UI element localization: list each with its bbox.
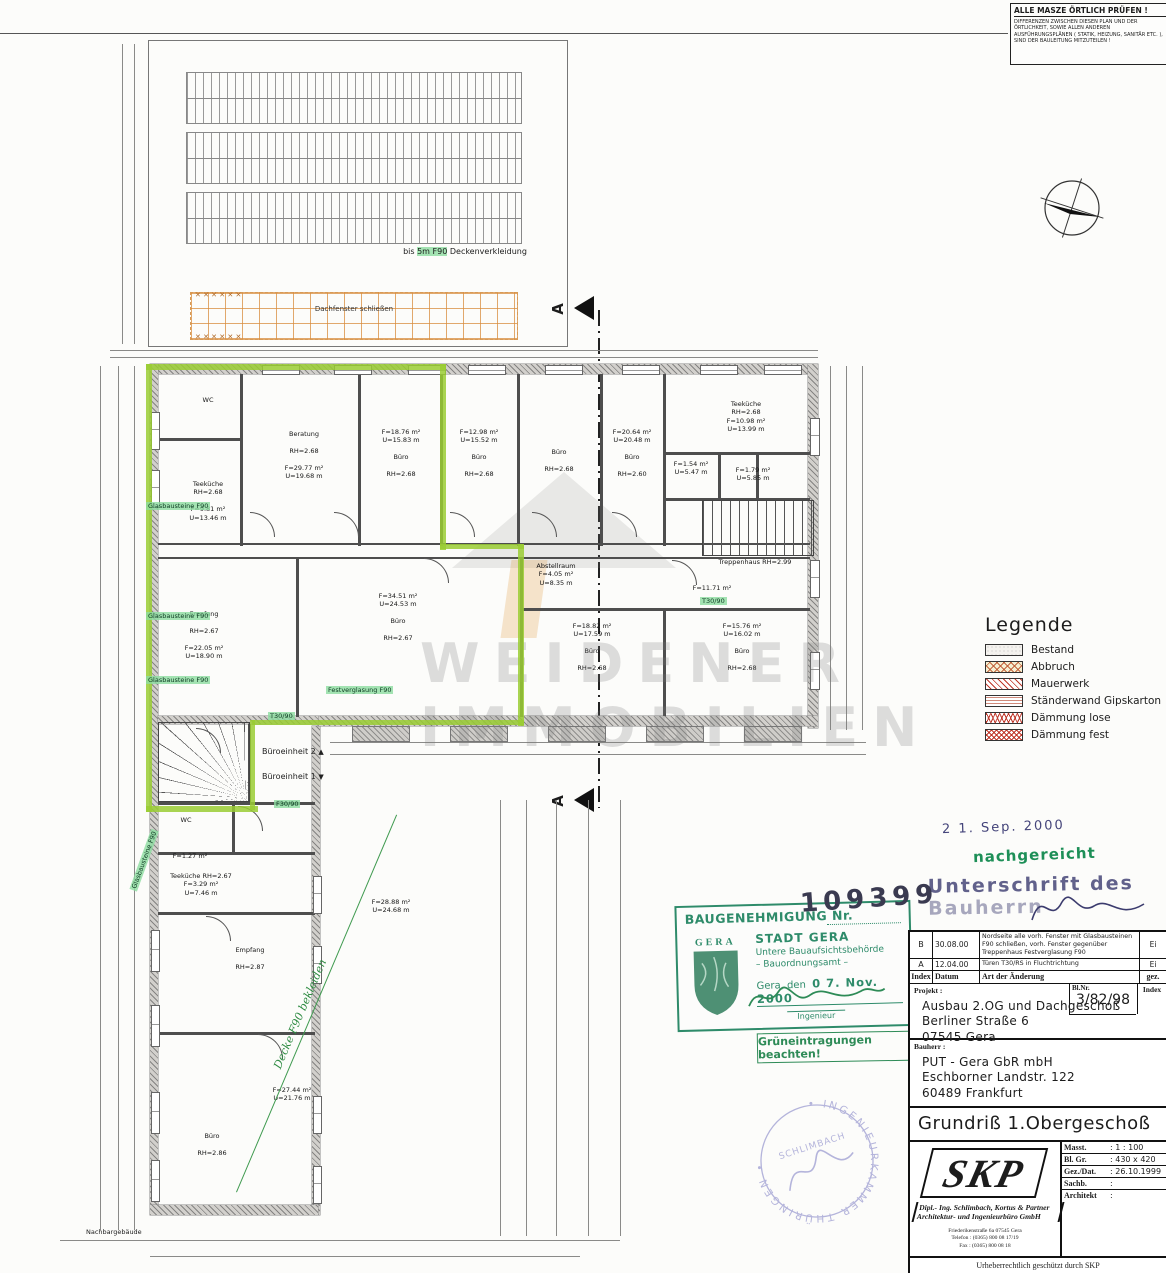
skp-logo-text: SKP <box>938 1149 1029 1196</box>
field-label: Masst. <box>1064 1143 1110 1152</box>
unit-arrow-icon: ▼ <box>318 773 323 781</box>
interior-wall <box>663 374 666 546</box>
room-label: Beratung RH=2.68 F=29.77 m²U=19.68 m <box>258 430 350 481</box>
field-label: Bl. Gr. <box>1064 1155 1110 1164</box>
bestand-swatch <box>985 644 1023 656</box>
room-label: F=1.79 m²U=5.85 m <box>728 466 778 483</box>
green-markup-line <box>146 364 446 370</box>
building-permit-stamp: BAUGENEHMIGUNG Nr. GERA STADT GERA Unter… <box>674 900 913 1032</box>
room-label: F=12.98 m²U=15.52 m Büro RH=2.68 <box>446 428 512 479</box>
field-value: : <box>1110 1179 1113 1188</box>
window-symbol <box>545 365 583 375</box>
room-label: Empfang RH=2.87 <box>212 946 288 971</box>
green-note: Glasbausteine F90 <box>146 502 210 510</box>
room-label: F=27.44 m²U=21.76 m <box>252 1086 332 1103</box>
legend-item-label: Abbruch <box>1031 661 1075 673</box>
rev-datum: 30.08.00 <box>933 932 980 958</box>
legend-item-label: Dämmung fest <box>1031 729 1109 741</box>
dimension-line <box>862 366 863 730</box>
door-arc <box>450 512 475 537</box>
green-entries-note: Grüneintragungen beachten! <box>758 1033 914 1062</box>
dimension-line <box>150 1256 580 1257</box>
interior-wall <box>600 374 603 546</box>
svg-text:GERA: GERA <box>695 937 736 949</box>
field-label: Architekt <box>1064 1191 1110 1255</box>
rev-text: Türen T30/RS in Fluchtrichtung <box>980 959 1140 970</box>
interior-wall <box>158 438 242 441</box>
revision-row: A12.04.00Türen T30/RS in FluchtrichtungE… <box>910 959 1166 971</box>
legend-item-label: Bestand <box>1031 644 1074 656</box>
room-label: F=1.27 m² <box>162 852 218 860</box>
revision-row: B30.08.00Nordseite alle vorh. Fenster mi… <box>910 932 1166 959</box>
legend-item-label: Dämmung lose <box>1031 712 1111 724</box>
index-label: Index <box>1138 984 1166 994</box>
dimension-line <box>500 800 501 1236</box>
svg-text:SCHLIMBACH: SCHLIMBACH <box>778 1131 847 1162</box>
client-lines: PUT - Gera GbR mbHEschborner Landstr. 12… <box>922 1055 1075 1102</box>
dimension-line <box>134 44 135 344</box>
dimension-line <box>110 350 818 351</box>
field-value: : 430 x 420 <box>1110 1155 1156 1164</box>
client-line: PUT - Gera GbR mbH <box>922 1055 1075 1071</box>
door-arc <box>612 512 637 537</box>
green-note: Festverglasung F90 <box>326 686 393 694</box>
window-symbol <box>313 876 322 914</box>
stamp-city: STADT GERA <box>755 930 849 946</box>
room-label: F=28.88 m²U=24.68 m <box>352 898 430 915</box>
interior-wall <box>296 559 299 717</box>
wall <box>150 1205 318 1215</box>
drawing-title-bar: Grundriß 1.Obergeschoß <box>910 1108 1166 1142</box>
dimension-line <box>134 366 135 1230</box>
client-line: Eschborner Landstr. 122 <box>922 1070 1075 1086</box>
dimension-line <box>556 800 557 1236</box>
window-symbol <box>764 365 802 375</box>
window-symbol <box>151 1160 160 1202</box>
gera-coat-of-arms: GERA <box>685 932 747 1022</box>
legend: Legende BestandAbbruchMauerwerkStänderwa… <box>985 614 1163 746</box>
room-label: Büro RH=2.86 <box>182 1132 242 1157</box>
room-label: F=20.64 m²U=20.48 m Büro RH=2.60 <box>604 428 660 479</box>
drawing-field: Masst.: 1 : 100 <box>1062 1142 1166 1154</box>
room-label: Teeküche RH=2.67F=3.29 m²U=7.46 m <box>158 872 244 897</box>
door-arc <box>206 916 231 941</box>
legend-item-label: Ständerwand Gipskarton <box>1031 695 1161 707</box>
neighbor-building-label: Nachbargebäude <box>86 1228 142 1236</box>
green-markup-line <box>146 364 152 812</box>
room-label: Treppenhaus RH=2.99 <box>700 558 810 566</box>
project-line: Ausbau 2.OG und Dachgeschoß <box>922 999 1120 1015</box>
stamp-role: Ingenieur <box>787 1010 845 1022</box>
project-line: Berliner Straße 6 <box>922 1014 1120 1030</box>
dimension-line <box>118 366 119 1230</box>
project-label: Projekt : <box>914 986 942 995</box>
project-section: Projekt : Bl.Nr. 3/82/98 Index Ausbau 2.… <box>910 984 1166 1040</box>
dimension-line <box>100 366 101 1230</box>
sheet-number-label: Bl.Nr. <box>1070 984 1136 992</box>
rev-index: B <box>910 932 933 958</box>
legend-item: Ständerwand Gipskarton <box>985 695 1163 707</box>
field-value: : 26.10.1999 <box>1110 1167 1161 1176</box>
dimension-line <box>122 44 123 344</box>
green-markup-line <box>250 720 255 810</box>
green-note: T30/90 <box>268 712 295 720</box>
watermark-line2: IMMOBILIEN <box>420 696 931 759</box>
legend-item: Dämmung fest <box>985 729 1163 741</box>
office-unit-label: Büroeinheit 2 ▲ <box>262 747 324 756</box>
mauerwerk-swatch <box>985 678 1023 690</box>
index-box: Index <box>1137 984 1166 1014</box>
interior-wall <box>663 452 810 455</box>
revision-header: Index Datum Art der Änderung gez. <box>910 971 1166 984</box>
field-label: Gez./Dat. <box>1064 1167 1110 1176</box>
drawing-field: Gez./Dat.: 26.10.1999 <box>1062 1166 1166 1178</box>
firm-name-line2: Architektur- und Ingenieurbüro GmbH <box>917 1212 1057 1221</box>
firm-name-line1: Dipl.- Ing. Schlimbach, Kortus & Partner <box>919 1203 1059 1212</box>
drawing-field: Sachb.: <box>1062 1178 1166 1190</box>
firm-logo-area: SKP Dipl.- Ing. Schlimbach, Kortus & Par… <box>910 1142 1062 1256</box>
room-label: WC <box>168 816 204 824</box>
stamp-authority: Untere Bauaufsichtsbehörde <box>756 945 885 958</box>
door-arc <box>250 512 275 537</box>
dimension-line <box>620 800 621 1236</box>
firm-address: Friederikenstraße 6a 07545 GeraTelefon :… <box>910 1228 1060 1251</box>
revision-rows: B30.08.00Nordseite alle vorh. Fenster mi… <box>910 932 1166 971</box>
stamp-office: – Bauordnungsamt – <box>756 958 848 970</box>
window-symbol <box>313 1166 322 1204</box>
field-label: Sachb. <box>1064 1179 1110 1188</box>
staender-swatch <box>985 695 1023 707</box>
daemmlose-swatch <box>985 712 1023 724</box>
staircase-wing <box>158 722 250 802</box>
legend-items: BestandAbbruchMauerwerkStänderwand Gipsk… <box>985 644 1163 741</box>
abbruch-swatch <box>985 661 1023 673</box>
field-value: : 1 : 100 <box>1110 1143 1143 1152</box>
window-symbol <box>810 560 820 598</box>
green-markup-line <box>440 544 524 549</box>
green-markup-line <box>518 544 524 726</box>
legend-item: Bestand <box>985 644 1163 656</box>
room-label: F=11.71 m² <box>680 584 744 592</box>
legend-item: Abbruch <box>985 661 1163 673</box>
dimension-line <box>588 800 589 1236</box>
compass-icon <box>1032 176 1112 242</box>
green-note: F30/90 <box>274 800 300 808</box>
rev-datum: 12.04.00 <box>933 959 980 970</box>
rev-gez: Ei <box>1140 959 1166 970</box>
door-arc <box>334 512 359 537</box>
rev-index: A <box>910 959 933 970</box>
client-section: Bauherr : PUT - Gera GbR mbHEschborner L… <box>910 1040 1166 1108</box>
window-symbol <box>700 365 738 375</box>
green-note: T30/90 <box>700 597 727 605</box>
green-entries-note-box: Grüneintragungen beachten! <box>757 1031 915 1064</box>
door-arc <box>424 558 449 583</box>
window-symbol <box>151 1005 160 1047</box>
scanned-floor-plan-sheet: ALLE MASZE ÖRTLICH PRÜFEN ! DIFFERENZEN … <box>0 0 1166 1273</box>
rev-gez: Ei <box>1140 932 1166 958</box>
door-arc <box>672 560 697 585</box>
drawing-field: Bl. Gr.: 430 x 420 <box>1062 1154 1166 1166</box>
dimension-line <box>110 357 818 358</box>
legend-item-label: Mauerwerk <box>1031 678 1089 690</box>
window-symbol <box>622 365 660 375</box>
watermark-line1: WEIDENER <box>420 632 854 695</box>
owner-signature <box>1022 884 1152 934</box>
green-note: Glasbausteine F90 <box>146 612 210 620</box>
skp-logo: SKP <box>920 1148 1048 1198</box>
client-line: 60489 Frankfurt <box>922 1086 1075 1102</box>
room-label: F=1.54 m²U=5.47 m <box>668 460 714 477</box>
interior-wall <box>517 374 520 546</box>
green-note: Glasbausteine F90 <box>146 676 210 684</box>
legend-item: Dämmung lose <box>985 712 1163 724</box>
room-label: Büro RH=2.68 <box>528 448 590 473</box>
window-symbol <box>468 365 506 375</box>
rev-text: Nordseite alle vorh. Fenster mit Glasbau… <box>980 932 1140 958</box>
room-label: TeekücheRH=2.68F=10.98 m²U=13.99 m <box>700 400 792 434</box>
field-value: : <box>1110 1191 1113 1255</box>
daemmfest-swatch <box>985 729 1023 741</box>
title-block: B30.08.00Nordseite alle vorh. Fenster mi… <box>908 930 1166 1273</box>
client-label: Bauherr : <box>914 1042 945 1051</box>
room-label: WC <box>190 396 226 404</box>
wall-pier <box>352 726 410 742</box>
unit-arrow-icon: ▲ <box>318 748 323 756</box>
interior-wall <box>520 608 666 611</box>
interior-wall <box>158 912 315 915</box>
rev-header-index: Index <box>910 971 933 983</box>
window-symbol <box>151 412 160 450</box>
legend-title: Legende <box>985 614 1163 636</box>
dimension-line <box>526 800 527 1236</box>
drawing-field: Architekt: <box>1062 1190 1166 1256</box>
room-label: AbstellraumF=4.05 m²U=8.35 m <box>516 562 596 587</box>
green-markup-line <box>252 720 524 725</box>
window-symbol <box>151 1092 160 1134</box>
dimension-line <box>60 1240 620 1241</box>
legend-item: Mauerwerk <box>985 678 1163 690</box>
door-arc <box>532 512 557 537</box>
interior-wall <box>358 374 361 546</box>
window-symbol <box>151 930 160 972</box>
room-label: F=18.76 m²U=15.83 m Büro RH=2.68 <box>368 428 434 479</box>
rev-header-gez: gez. <box>1140 971 1166 983</box>
drawing-fields: Masst.: 1 : 100Bl. Gr.: 430 x 420Gez./Da… <box>1062 1142 1166 1256</box>
office-unit-label: Büroeinheit 1 ▼ <box>262 772 324 781</box>
copyright-note: Urheberrechtlich geschützt durch SKP <box>910 1256 1166 1273</box>
firm-address-line: Fax : (0365) 800 08 18 <box>910 1243 1060 1251</box>
green-markup-line <box>440 364 446 550</box>
rev-header-datum: Datum <box>933 971 980 983</box>
interior-wall <box>663 608 810 611</box>
green-markup-line <box>146 806 258 812</box>
firm-block: SKP Dipl.- Ing. Schlimbach, Kortus & Par… <box>910 1142 1166 1256</box>
drawing-title: Grundriß 1.Obergeschoß <box>918 1113 1151 1134</box>
rev-header-text: Art der Änderung <box>980 971 1140 983</box>
firm-name: Dipl.- Ing. Schlimbach, Kortus & Partner… <box>912 1202 1065 1222</box>
staircase-main <box>702 500 814 556</box>
interior-wall <box>718 452 721 501</box>
window-symbol <box>810 418 820 456</box>
